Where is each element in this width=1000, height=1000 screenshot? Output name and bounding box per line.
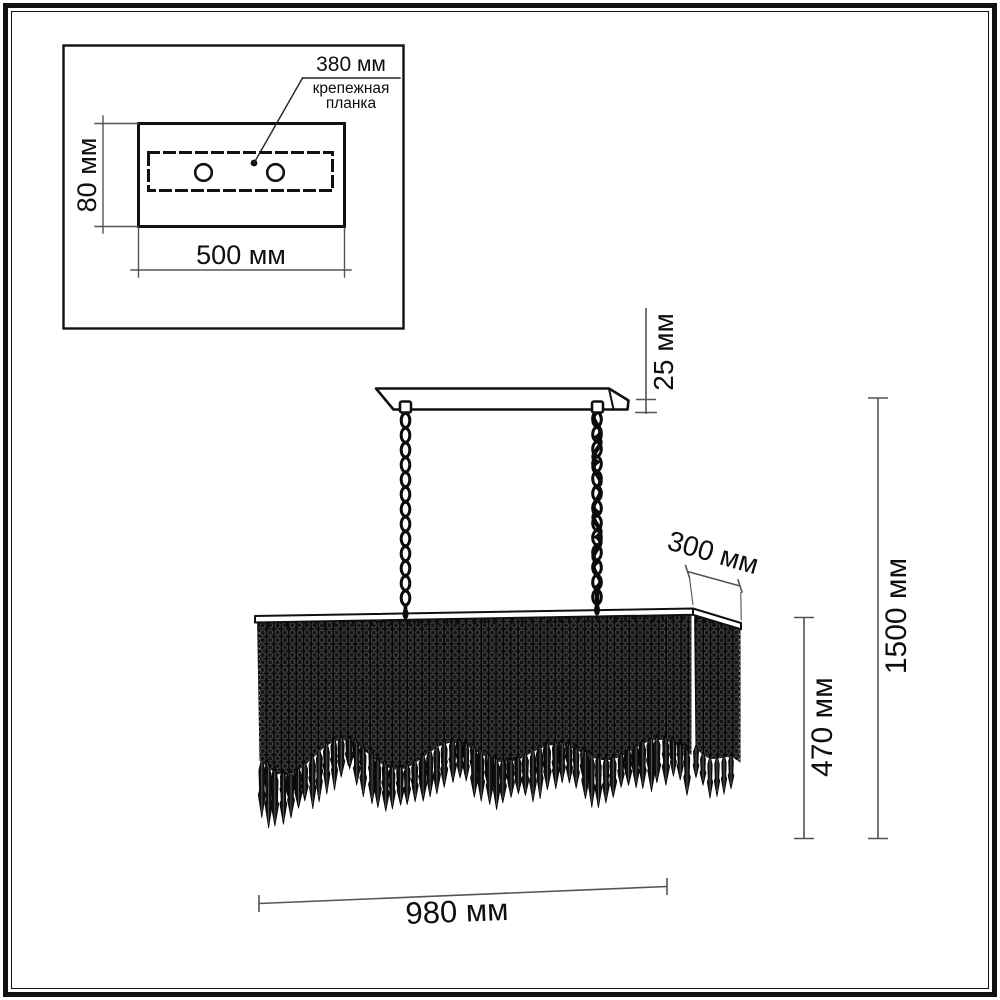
screw-hole-right — [267, 164, 284, 181]
bracket-name-label: крепежная планка — [303, 81, 399, 111]
dim-shade-width-label: 980 мм — [371, 893, 542, 934]
diagram-drawing — [0, 0, 1000, 1000]
screw-hole-left — [195, 164, 212, 181]
dim-bracket-length-label: 380 мм — [302, 54, 400, 76]
hanger-right — [592, 402, 603, 413]
dim-overall-height-label: 1500 мм — [881, 536, 913, 696]
chandelier-dimension-diagram: 380 мм крепежная планка 80 мм 500 мм 25 … — [0, 0, 1000, 1000]
dim-shade-height-label: 470 мм — [807, 657, 839, 797]
hanger-left — [400, 402, 411, 413]
ceiling-plate-outline — [139, 124, 345, 227]
dim-plate-depth-label: 80 мм — [73, 115, 101, 235]
dim-canopy-thickness-label: 25 мм — [649, 292, 679, 412]
ceiling-canopy — [376, 389, 629, 410]
suspension-chains — [401, 412, 601, 620]
dim-plate-width-label: 500 мм — [171, 241, 311, 269]
canopy-plate — [376, 389, 629, 410]
